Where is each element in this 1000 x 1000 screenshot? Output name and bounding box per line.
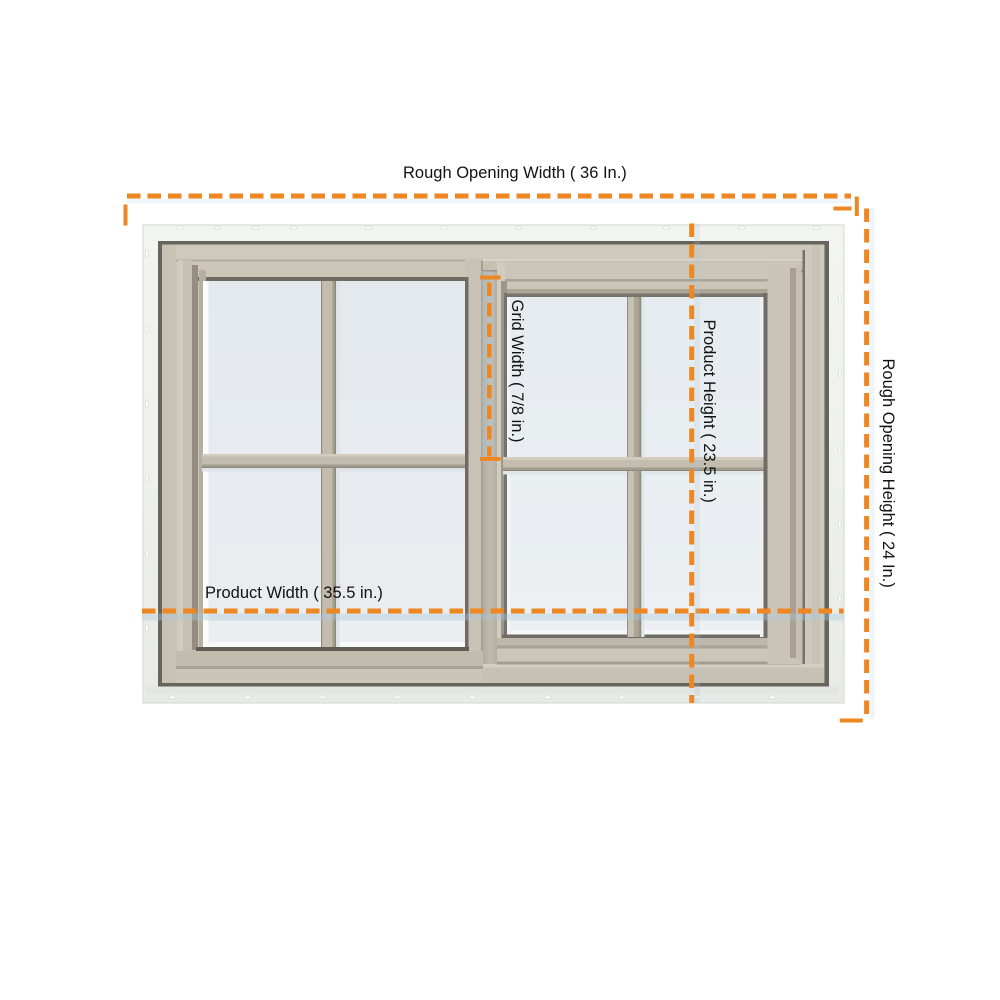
svg-text:Grid Width ( 7/8 in.): Grid Width ( 7/8 in.) xyxy=(508,300,526,443)
svg-text:Product Width ( 35.5 in.): Product Width ( 35.5 in.) xyxy=(205,584,383,602)
svg-text:Product Height ( 23.5 in.): Product Height ( 23.5 in.) xyxy=(700,320,718,503)
svg-text:Rough Opening Width ( 36 In.): Rough Opening Width ( 36 In.) xyxy=(403,164,627,182)
svg-text:Rough Opening Height ( 24 In.): Rough Opening Height ( 24 In.) xyxy=(879,359,897,588)
